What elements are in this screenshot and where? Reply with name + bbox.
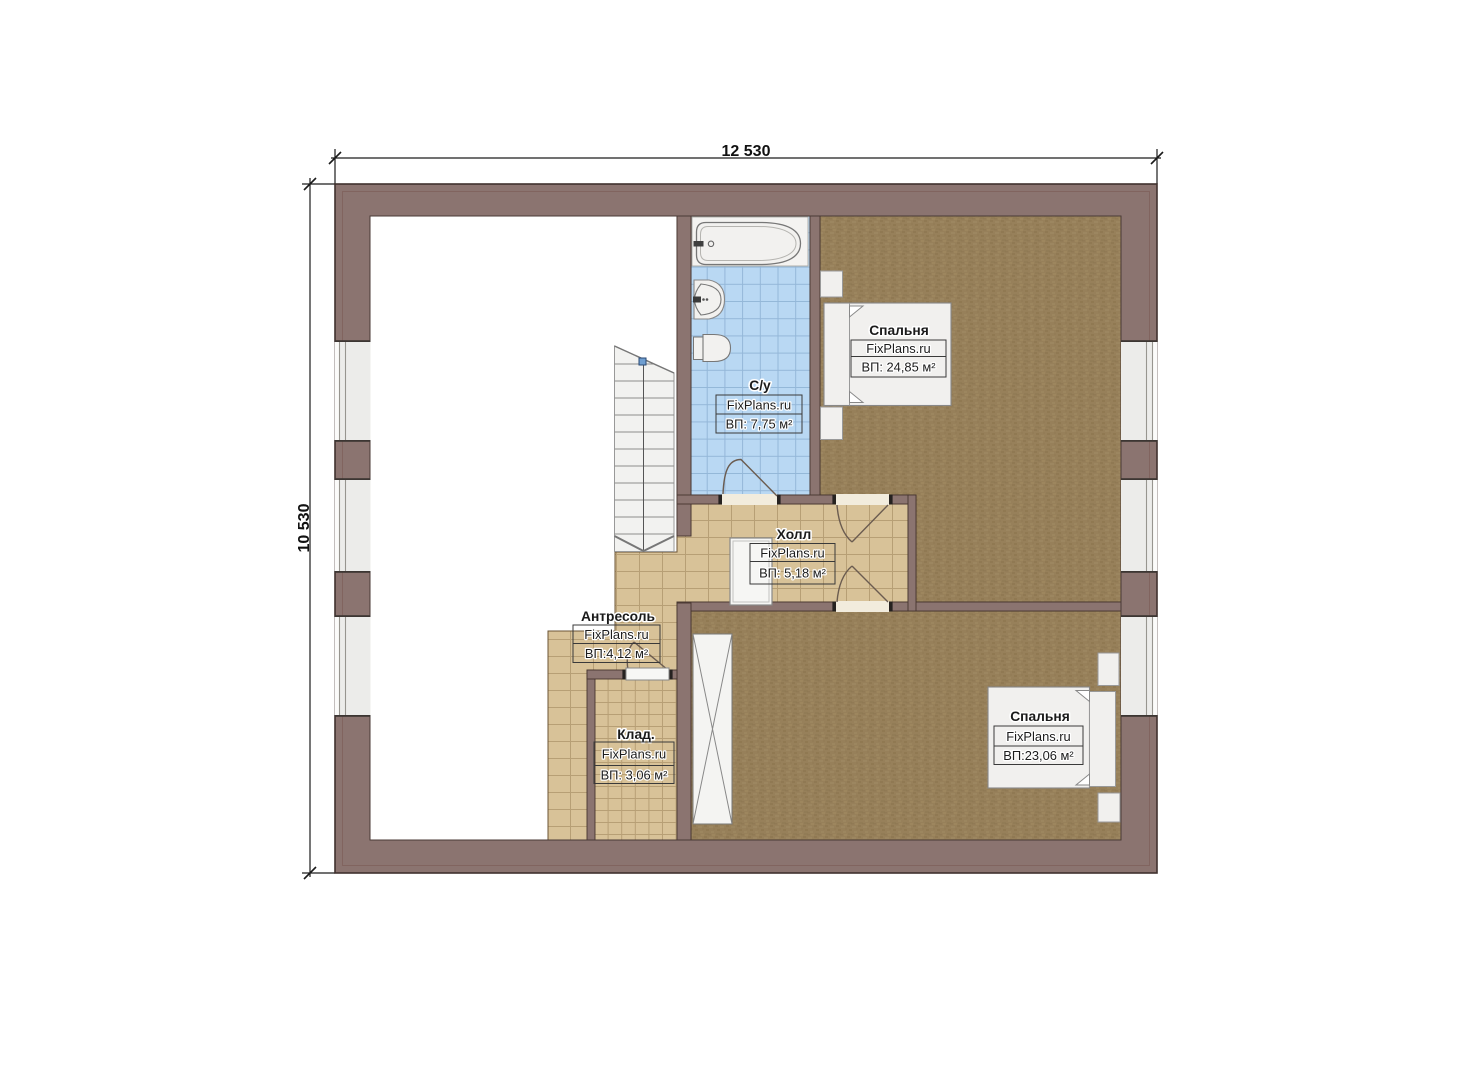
svg-text:FixPlans.ru: FixPlans.ru [866,341,930,356]
svg-text:FixPlans.ru: FixPlans.ru [727,397,791,412]
svg-text:12 530: 12 530 [722,143,771,160]
svg-text:FixPlans.ru: FixPlans.ru [1006,729,1070,744]
svg-text:Антресоль: Антресоль [581,609,655,624]
svg-text:Клад.: Клад. [617,727,654,742]
svg-text:ВП: 24,85 м²: ВП: 24,85 м² [861,360,936,375]
svg-text:ВП: 7,75 м²: ВП: 7,75 м² [726,416,794,431]
svg-text:ВП:23,06 м²: ВП:23,06 м² [1003,748,1074,763]
svg-text:10 530: 10 530 [296,503,313,552]
svg-text:Холл: Холл [777,527,812,542]
svg-text:ВП: 3,06 м²: ВП: 3,06 м² [601,767,669,782]
svg-text:Спальня: Спальня [1010,709,1070,724]
svg-text:Спальня: Спальня [869,323,929,338]
svg-text:ВП:4,12 м²: ВП:4,12 м² [585,646,649,661]
svg-text:ВП: 5,18 м²: ВП: 5,18 м² [759,566,827,581]
svg-text:FixPlans.ru: FixPlans.ru [584,627,648,642]
svg-text:С/у: С/у [749,378,771,393]
svg-text:FixPlans.ru: FixPlans.ru [602,747,666,762]
svg-text:FixPlans.ru: FixPlans.ru [760,545,824,560]
